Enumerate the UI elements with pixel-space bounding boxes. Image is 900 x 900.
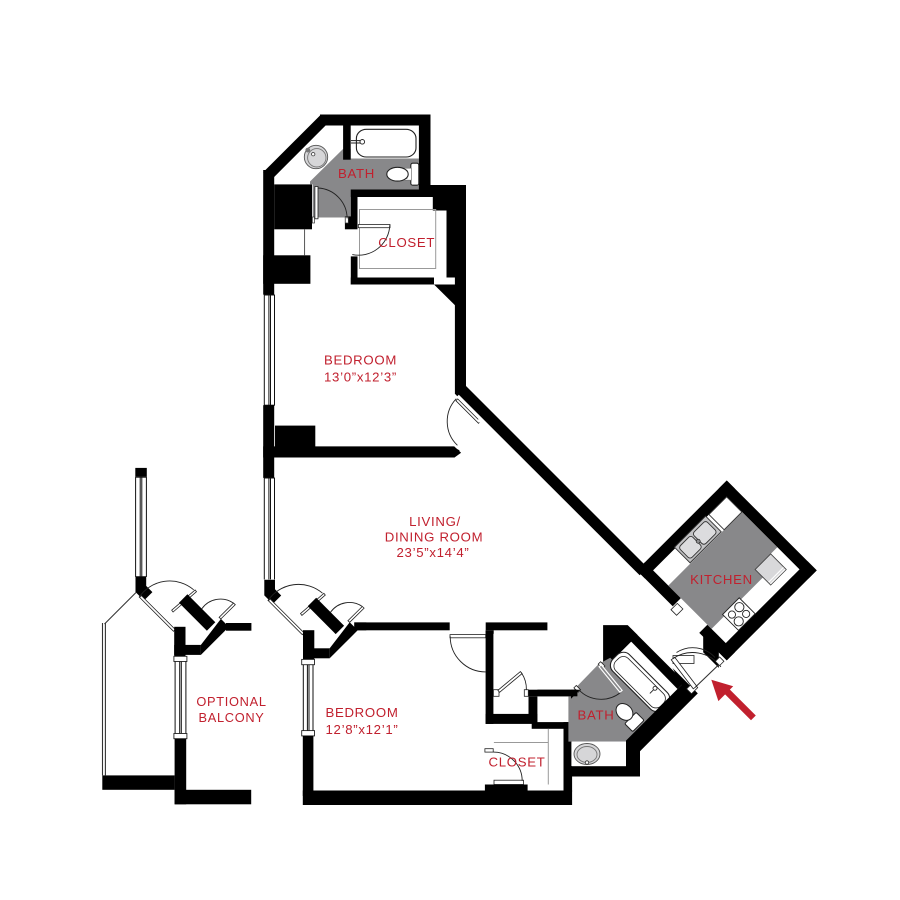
svg-text:23’5”x14’4”: 23’5”x14’4” bbox=[397, 545, 470, 560]
svg-text:DINING ROOM: DINING ROOM bbox=[385, 530, 484, 545]
svg-text:OPTIONAL: OPTIONAL bbox=[196, 694, 266, 709]
svg-text:BATH: BATH bbox=[578, 708, 615, 723]
svg-text:CLOSET: CLOSET bbox=[378, 235, 435, 250]
svg-text:LIVING/: LIVING/ bbox=[409, 514, 461, 529]
svg-text:13’0”x12’3”: 13’0”x12’3” bbox=[324, 370, 397, 385]
svg-text:BALCONY: BALCONY bbox=[198, 710, 264, 725]
svg-text:12’8”x12’1”: 12’8”x12’1” bbox=[326, 722, 399, 737]
svg-text:KITCHEN: KITCHEN bbox=[690, 572, 753, 587]
svg-text:BEDROOM: BEDROOM bbox=[325, 705, 398, 720]
svg-text:CLOSET: CLOSET bbox=[489, 755, 546, 770]
svg-text:BATH: BATH bbox=[338, 166, 375, 181]
svg-text:BEDROOM: BEDROOM bbox=[324, 353, 397, 368]
